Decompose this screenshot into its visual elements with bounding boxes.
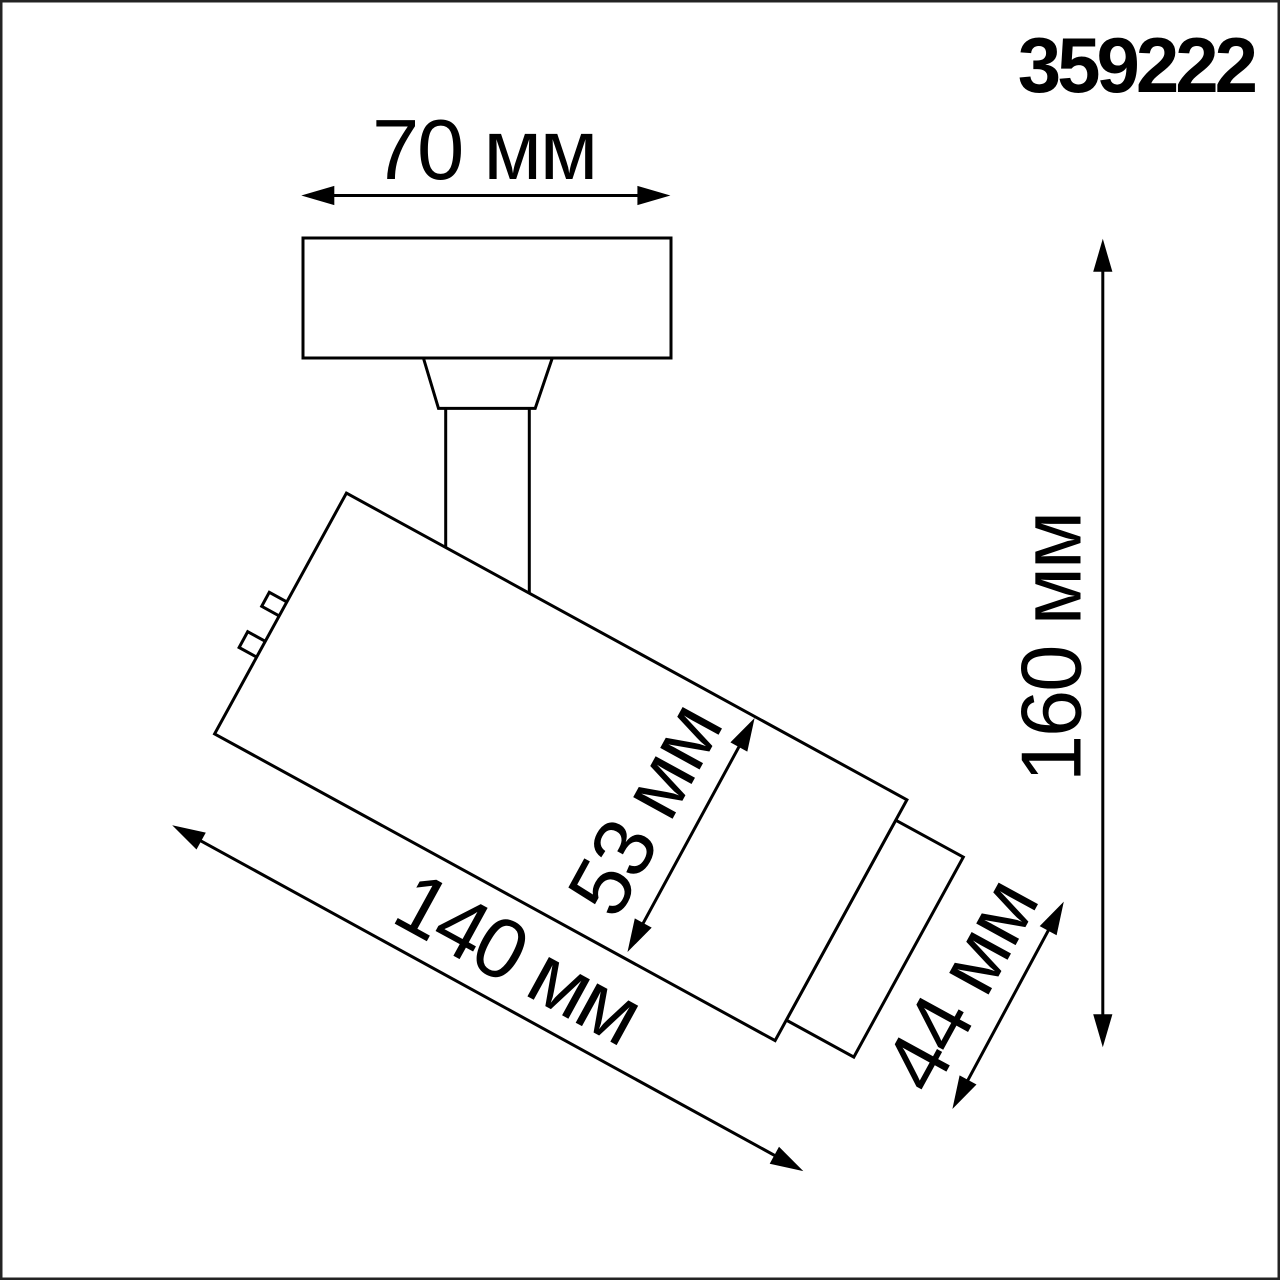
svg-text:160 мм: 160 мм <box>1005 513 1100 782</box>
svg-text:70 мм: 70 мм <box>372 103 596 198</box>
svg-text:359222: 359222 <box>1018 21 1256 109</box>
